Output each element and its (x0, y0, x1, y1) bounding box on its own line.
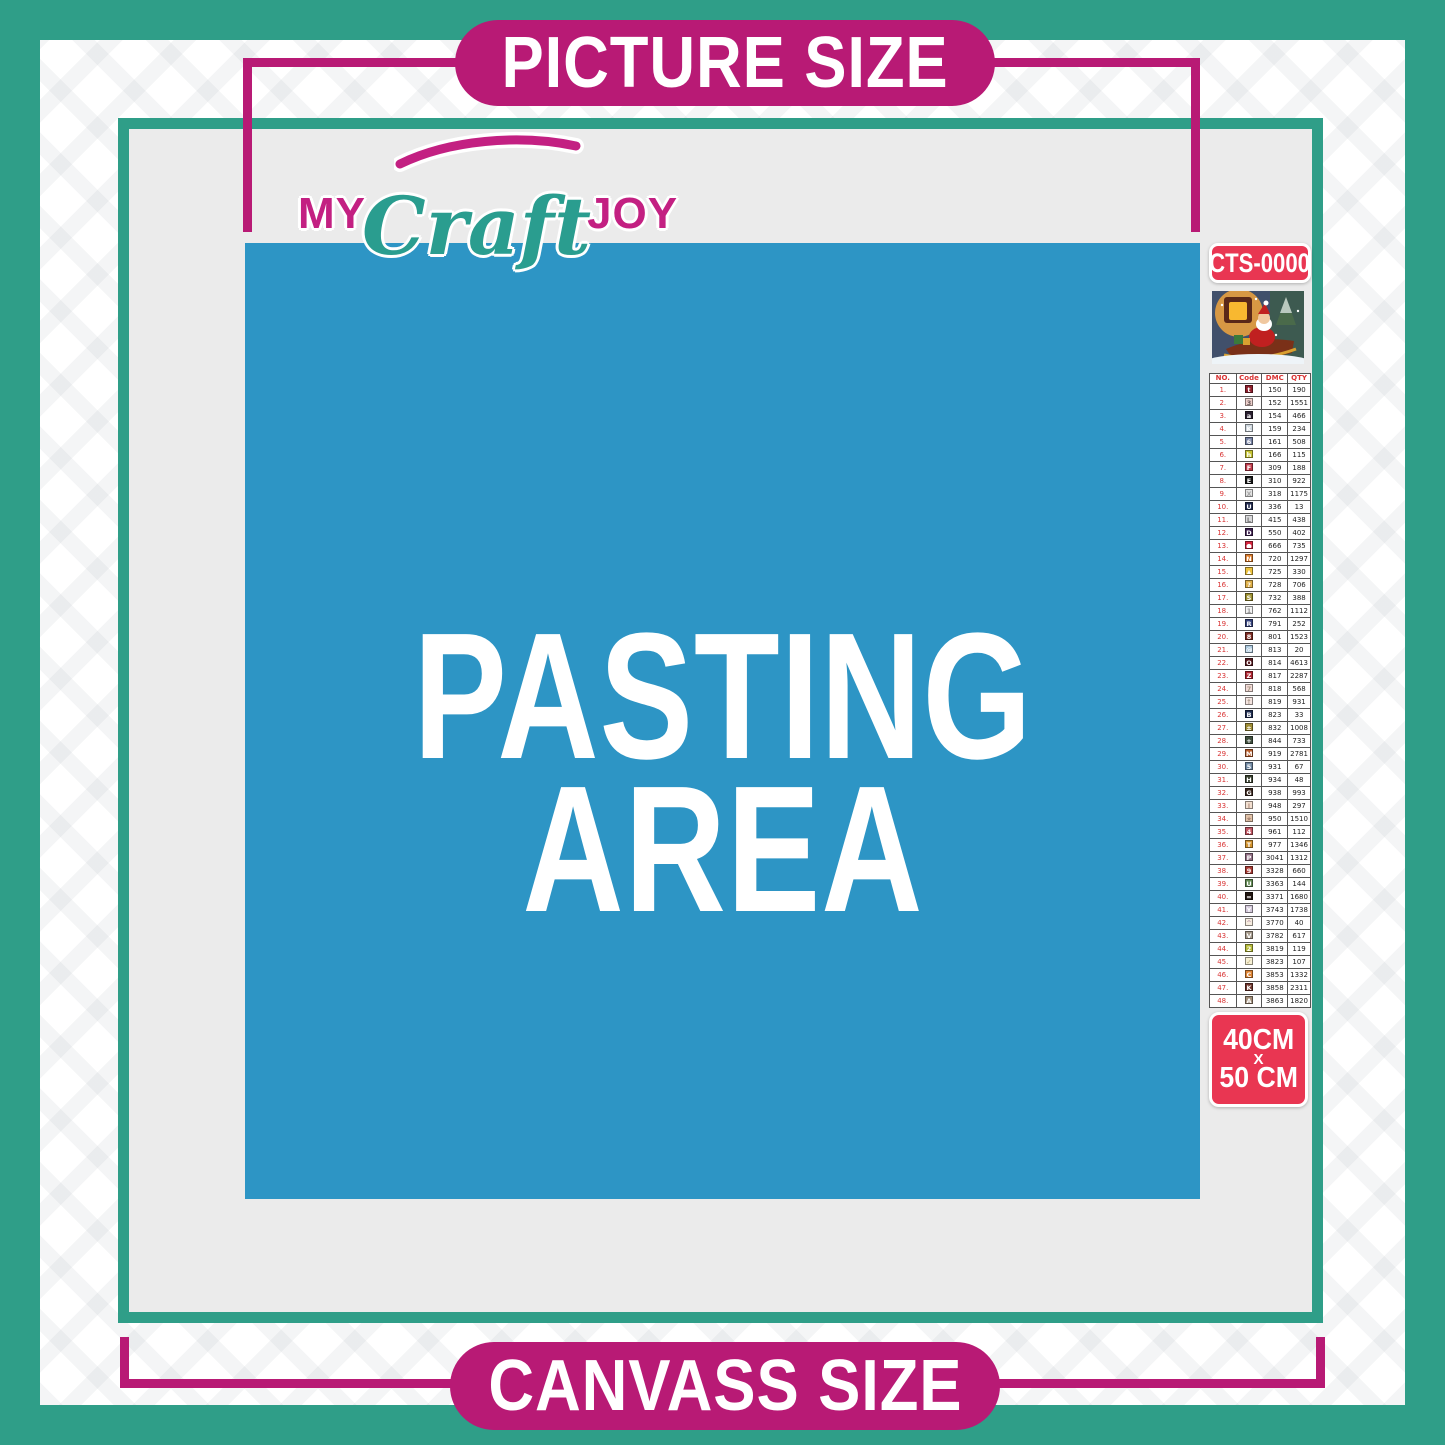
row-qty-value: 1112 (1288, 605, 1311, 618)
canvas-size-badge: 40CM X 50 CM (1209, 1012, 1308, 1107)
row-number: 16. (1210, 579, 1237, 592)
row-dmc-value: 818 (1262, 683, 1288, 696)
table-row: 41. Y 3743 1738 (1210, 904, 1311, 917)
color-symbol: ★ (1245, 814, 1253, 822)
row-qty-value: 20 (1288, 644, 1311, 657)
row-qty-value: 1346 (1288, 839, 1311, 852)
table-row: 24. 7 818 568 (1210, 683, 1311, 696)
table-row: 48. A 3863 1820 (1210, 995, 1311, 1008)
row-dmc-value: 720 (1262, 553, 1288, 566)
table-row: 13. ● 666 735 (1210, 540, 1311, 553)
row-qty-value: 706 (1288, 579, 1311, 592)
color-symbol: U (1245, 502, 1253, 510)
pasting-area: PASTING AREA (245, 243, 1200, 1199)
row-qty-value: 13 (1288, 501, 1311, 514)
row-code-cell: S (1236, 592, 1262, 605)
row-number: 44. (1210, 943, 1237, 956)
table-row: 7. F 309 188 (1210, 462, 1311, 475)
legend-table-head: NO. Code DMC QTY (1210, 374, 1311, 384)
table-row: 16. ? 728 706 (1210, 579, 1311, 592)
row-code-cell: U (1236, 501, 1262, 514)
row-dmc-value: 3858 (1262, 982, 1288, 995)
canvas-layout-sheet: { "colors": { "teal": "#2f9e88", "magent… (0, 0, 1445, 1445)
row-qty-value: 115 (1288, 449, 1311, 462)
row-qty-value: 330 (1288, 566, 1311, 579)
table-row: 45. ✓ 3823 107 (1210, 956, 1311, 969)
table-row: 37. P 3041 1312 (1210, 852, 1311, 865)
table-row: 1. t 150 190 (1210, 384, 1311, 397)
row-number: 1. (1210, 384, 1237, 397)
row-code-cell: ± (1236, 722, 1262, 735)
row-qty-value: 1551 (1288, 397, 1311, 410)
color-symbol: B (1245, 710, 1253, 718)
table-row: 19. R 791 252 (1210, 618, 1311, 631)
row-code-cell: ? (1236, 579, 1262, 592)
row-number: 42. (1210, 917, 1237, 930)
row-number: 25. (1210, 696, 1237, 709)
color-symbol: 8 (1245, 632, 1253, 640)
table-row: 35. 4 961 112 (1210, 826, 1311, 839)
row-dmc-value: 3770 (1262, 917, 1288, 930)
row-qty-value: 1680 (1288, 891, 1311, 904)
row-code-cell: C (1236, 969, 1262, 982)
row-qty-value: 1523 (1288, 631, 1311, 644)
row-qty-value: 922 (1288, 475, 1311, 488)
row-qty-value: 1297 (1288, 553, 1311, 566)
row-number: 20. (1210, 631, 1237, 644)
table-row: 3. a 154 466 (1210, 410, 1311, 423)
thumb-hat-pompom (1264, 301, 1269, 306)
table-row: 17. S 732 388 (1210, 592, 1311, 605)
row-code-cell: U (1236, 878, 1262, 891)
color-symbol: L (1245, 515, 1253, 523)
row-qty-value: 402 (1288, 527, 1311, 540)
color-symbol: Z (1245, 671, 1253, 679)
row-number: 22. (1210, 657, 1237, 670)
color-symbol: E (1245, 476, 1253, 484)
color-symbol: A (1245, 996, 1253, 1004)
row-code-cell: P (1236, 852, 1262, 865)
row-qty-value: 112 (1288, 826, 1311, 839)
row-dmc-value: 309 (1262, 462, 1288, 475)
row-qty-value: 48 (1288, 774, 1311, 787)
color-symbol: h (1245, 450, 1253, 458)
row-dmc-value: 844 (1262, 735, 1288, 748)
row-number: 46. (1210, 969, 1237, 982)
row-qty-value: 660 (1288, 865, 1311, 878)
row-dmc-value: 728 (1262, 579, 1288, 592)
row-dmc-value: 801 (1262, 631, 1288, 644)
row-number: 8. (1210, 475, 1237, 488)
table-row: 8. E 310 922 (1210, 475, 1311, 488)
row-dmc-value: 961 (1262, 826, 1288, 839)
row-code-cell: 3 (1236, 397, 1262, 410)
logo-my: MY (298, 192, 366, 236)
row-code-cell: D (1236, 527, 1262, 540)
table-row: 4. K 159 234 (1210, 423, 1311, 436)
row-number: 41. (1210, 904, 1237, 917)
row-dmc-value: 154 (1262, 410, 1288, 423)
color-symbol: + (1245, 736, 1253, 744)
row-number: 4. (1210, 423, 1237, 436)
row-qty-value: 33 (1288, 709, 1311, 722)
row-code-cell: J (1236, 800, 1262, 813)
row-number: 21. (1210, 644, 1237, 657)
row-code-cell: B (1236, 709, 1262, 722)
row-qty-value: 107 (1288, 956, 1311, 969)
row-dmc-value: 310 (1262, 475, 1288, 488)
thumb-fire (1229, 302, 1247, 320)
row-code-cell: L (1236, 514, 1262, 527)
row-number: 30. (1210, 761, 1237, 774)
row-code-cell: @ (1236, 644, 1262, 657)
row-code-cell: ● (1236, 540, 1262, 553)
row-dmc-value: 938 (1262, 787, 1288, 800)
table-row: 42. ^ 3770 40 (1210, 917, 1311, 930)
row-qty-value: 568 (1288, 683, 1311, 696)
color-symbol: M (1245, 749, 1253, 757)
row-code-cell: A (1236, 995, 1262, 1008)
row-code-cell: ★ (1236, 813, 1262, 826)
table-row: 9. X 318 1175 (1210, 488, 1311, 501)
row-number: 37. (1210, 852, 1237, 865)
color-symbol: H (1245, 775, 1253, 783)
table-row: 47. K 3858 2311 (1210, 982, 1311, 995)
row-dmc-value: 3853 (1262, 969, 1288, 982)
color-symbol: ✓ (1245, 957, 1253, 965)
row-code-cell: G (1236, 787, 1262, 800)
table-row: 21. @ 813 20 (1210, 644, 1311, 657)
table-row: 44. 2 3819 119 (1210, 943, 1311, 956)
row-code-cell: 6 (1236, 436, 1262, 449)
row-number: 15. (1210, 566, 1237, 579)
row-dmc-value: 3823 (1262, 956, 1288, 969)
color-legend-table: NO. Code DMC QTY 1. t 150 190 2. 3 152 1… (1209, 373, 1311, 1008)
row-dmc-value: 415 (1262, 514, 1288, 527)
table-row: 26. B 823 33 (1210, 709, 1311, 722)
table-row: 23. Z 817 2287 (1210, 670, 1311, 683)
color-symbol: U (1245, 879, 1253, 887)
row-number: 36. (1210, 839, 1237, 852)
color-symbol: K (1245, 983, 1253, 991)
table-row: 20. 8 801 1523 (1210, 631, 1311, 644)
row-number: 43. (1210, 930, 1237, 943)
row-number: 24. (1210, 683, 1237, 696)
row-code-cell: K (1236, 982, 1262, 995)
color-symbol: N (1245, 554, 1253, 562)
row-number: 9. (1210, 488, 1237, 501)
table-row: 36. T 977 1346 (1210, 839, 1311, 852)
product-thumbnail (1212, 291, 1304, 364)
color-symbol: O (1245, 658, 1253, 666)
row-number: 34. (1210, 813, 1237, 826)
row-qty-value: 252 (1288, 618, 1311, 631)
row-number: 40. (1210, 891, 1237, 904)
row-number: 23. (1210, 670, 1237, 683)
row-code-cell: 8 (1236, 631, 1262, 644)
thumb-snowflake (1221, 304, 1223, 306)
color-symbol: t (1245, 385, 1253, 393)
row-dmc-value: 948 (1262, 800, 1288, 813)
row-qty-value: 1332 (1288, 969, 1311, 982)
table-row: 31. H 934 48 (1210, 774, 1311, 787)
row-code-cell: ↑ (1236, 696, 1262, 709)
row-qty-value: 188 (1288, 462, 1311, 475)
row-dmc-value: 762 (1262, 605, 1288, 618)
row-qty-value: 1820 (1288, 995, 1311, 1008)
color-symbol: 2 (1245, 944, 1253, 952)
row-code-cell: + (1236, 735, 1262, 748)
row-qty-value: 931 (1288, 696, 1311, 709)
color-symbol: = (1245, 892, 1253, 900)
table-row: 33. J 948 297 (1210, 800, 1311, 813)
color-symbol: 4 (1245, 827, 1253, 835)
row-dmc-value: 3819 (1262, 943, 1288, 956)
row-code-cell: t (1236, 384, 1262, 397)
row-number: 31. (1210, 774, 1237, 787)
color-symbol: V (1245, 931, 1253, 939)
row-number: 47. (1210, 982, 1237, 995)
row-code-cell: F (1236, 462, 1262, 475)
table-row: 32. G 938 993 (1210, 787, 1311, 800)
row-dmc-value: 3743 (1262, 904, 1288, 917)
table-row: 5. 6 161 508 (1210, 436, 1311, 449)
row-code-cell: T (1236, 839, 1262, 852)
row-code-cell: Y (1236, 904, 1262, 917)
row-code-cell: N (1236, 553, 1262, 566)
row-dmc-value: 823 (1262, 709, 1288, 722)
row-number: 7. (1210, 462, 1237, 475)
thumb-snowflake (1275, 334, 1277, 336)
row-qty-value: 1008 (1288, 722, 1311, 735)
size-height: 50 CM (1219, 1066, 1298, 1091)
row-qty-value: 1312 (1288, 852, 1311, 865)
row-number: 3. (1210, 410, 1237, 423)
row-dmc-value: 3371 (1262, 891, 1288, 904)
row-qty-value: 40 (1288, 917, 1311, 930)
color-symbol: ↑ (1245, 697, 1253, 705)
row-number: 10. (1210, 501, 1237, 514)
color-symbol: C (1245, 970, 1253, 978)
table-row: 34. ★ 950 1510 (1210, 813, 1311, 826)
table-row: 2. 3 152 1551 (1210, 397, 1311, 410)
color-symbol: K (1245, 424, 1253, 432)
pasting-line-2: AREA (413, 773, 1032, 926)
row-code-cell: V (1236, 930, 1262, 943)
row-dmc-value: 550 (1262, 527, 1288, 540)
row-number: 11. (1210, 514, 1237, 527)
row-dmc-value: 161 (1262, 436, 1288, 449)
thumb-snowflake (1255, 298, 1257, 300)
row-number: 17. (1210, 592, 1237, 605)
row-dmc-value: 150 (1262, 384, 1288, 397)
table-row: 29. M 919 2781 (1210, 748, 1311, 761)
color-symbol: J (1245, 801, 1253, 809)
table-row: 40. = 3371 1680 (1210, 891, 1311, 904)
legend-table-body: 1. t 150 190 2. 3 152 1551 3. a 154 466 … (1210, 384, 1311, 1008)
row-code-cell: 7 (1236, 683, 1262, 696)
row-qty-value: 1510 (1288, 813, 1311, 826)
row-number: 29. (1210, 748, 1237, 761)
legend-strip: CTS-0000 NO. Code DMC QTY (1204, 243, 1312, 1107)
color-symbol: @ (1245, 645, 1253, 653)
row-qty-value: 297 (1288, 800, 1311, 813)
row-number: 26. (1210, 709, 1237, 722)
color-symbol: ^ (1245, 918, 1253, 926)
color-symbol: 5 (1245, 762, 1253, 770)
row-qty-value: 733 (1288, 735, 1311, 748)
row-code-cell: h (1236, 449, 1262, 462)
row-number: 19. (1210, 618, 1237, 631)
row-qty-value: 735 (1288, 540, 1311, 553)
row-number: 28. (1210, 735, 1237, 748)
row-qty-value: 388 (1288, 592, 1311, 605)
row-number: 14. (1210, 553, 1237, 566)
row-dmc-value: 3363 (1262, 878, 1288, 891)
thumb-gift-green (1234, 335, 1243, 344)
row-number: 33. (1210, 800, 1237, 813)
row-qty-value: 67 (1288, 761, 1311, 774)
table-row: 38. 9 3328 660 (1210, 865, 1311, 878)
color-symbol: F (1245, 463, 1253, 471)
header-qty: QTY (1288, 374, 1311, 384)
row-dmc-value: 666 (1262, 540, 1288, 553)
row-code-cell: a (1236, 410, 1262, 423)
table-row: 30. 5 931 67 (1210, 761, 1311, 774)
row-number: 12. (1210, 527, 1237, 540)
row-code-cell: 2 (1236, 943, 1262, 956)
row-code-cell: = (1236, 891, 1262, 904)
color-symbol: 6 (1245, 437, 1253, 445)
logo-craft: Craft (362, 196, 591, 256)
row-qty-value: 119 (1288, 943, 1311, 956)
row-qty-value: 190 (1288, 384, 1311, 397)
table-row: 28. + 844 733 (1210, 735, 1311, 748)
row-dmc-value: 817 (1262, 670, 1288, 683)
row-dmc-value: 832 (1262, 722, 1288, 735)
row-number: 6. (1210, 449, 1237, 462)
color-symbol: R (1245, 619, 1253, 627)
header-no: NO. (1210, 374, 1237, 384)
picture-size-banner: PICTURE SIZE (455, 20, 995, 106)
row-number: 39. (1210, 878, 1237, 891)
row-number: 27. (1210, 722, 1237, 735)
table-row: 11. L 415 438 (1210, 514, 1311, 527)
size-width: 40CM (1223, 1028, 1294, 1053)
table-row: 6. h 166 115 (1210, 449, 1311, 462)
brand-logo: MY Craft JOY (298, 146, 678, 246)
row-dmc-value: 931 (1262, 761, 1288, 774)
table-row: 15. ▲ 725 330 (1210, 566, 1311, 579)
table-row: 27. ± 832 1008 (1210, 722, 1311, 735)
color-symbol: P (1245, 853, 1253, 861)
color-symbol: ▲ (1245, 567, 1253, 575)
color-symbol: S (1245, 593, 1253, 601)
picture-size-label: PICTURE SIZE (501, 22, 948, 104)
table-row: 18. 1 762 1112 (1210, 605, 1311, 618)
color-symbol: D (1245, 528, 1253, 536)
row-qty-value: 2781 (1288, 748, 1311, 761)
row-code-cell: 4 (1236, 826, 1262, 839)
row-number: 38. (1210, 865, 1237, 878)
color-symbol: ± (1245, 723, 1253, 731)
color-symbol: 9 (1245, 866, 1253, 874)
row-qty-value: 144 (1288, 878, 1311, 891)
row-dmc-value: 3328 (1262, 865, 1288, 878)
color-symbol: ? (1245, 580, 1253, 588)
table-row: 43. V 3782 617 (1210, 930, 1311, 943)
color-symbol: Y (1245, 905, 1253, 913)
row-dmc-value: 725 (1262, 566, 1288, 579)
row-number: 13. (1210, 540, 1237, 553)
row-dmc-value: 3041 (1262, 852, 1288, 865)
color-symbol: a (1245, 411, 1253, 419)
row-dmc-value: 318 (1262, 488, 1288, 501)
table-row: 25. ↑ 819 931 (1210, 696, 1311, 709)
pasting-area-label: PASTING AREA (326, 620, 1120, 926)
table-row: 12. D 550 402 (1210, 527, 1311, 540)
row-number: 32. (1210, 787, 1237, 800)
canvass-size-banner: CANVASS SIZE (450, 1342, 1000, 1430)
row-code-cell: ^ (1236, 917, 1262, 930)
table-row: 14. N 720 1297 (1210, 553, 1311, 566)
row-qty-value: 2311 (1288, 982, 1311, 995)
row-qty-value: 508 (1288, 436, 1311, 449)
row-dmc-value: 3863 (1262, 995, 1288, 1008)
thumb-snowflake (1297, 310, 1299, 312)
row-dmc-value: 3782 (1262, 930, 1288, 943)
row-qty-value: 438 (1288, 514, 1311, 527)
row-code-cell: ▲ (1236, 566, 1262, 579)
table-row: 10. U 336 13 (1210, 501, 1311, 514)
row-qty-value: 466 (1288, 410, 1311, 423)
row-qty-value: 993 (1288, 787, 1311, 800)
row-qty-value: 617 (1288, 930, 1311, 943)
logo-joy: JOY (587, 192, 678, 236)
row-dmc-value: 934 (1262, 774, 1288, 787)
color-symbol: G (1245, 788, 1253, 796)
row-dmc-value: 791 (1262, 618, 1288, 631)
row-code-cell: Z (1236, 670, 1262, 683)
row-number: 18. (1210, 605, 1237, 618)
row-qty-value: 234 (1288, 423, 1311, 436)
row-qty-value: 4613 (1288, 657, 1311, 670)
row-code-cell: E (1236, 475, 1262, 488)
row-code-cell: M (1236, 748, 1262, 761)
row-dmc-value: 159 (1262, 423, 1288, 436)
row-dmc-value: 919 (1262, 748, 1288, 761)
row-dmc-value: 977 (1262, 839, 1288, 852)
product-code-badge: CTS-0000 (1209, 243, 1311, 283)
row-code-cell: X (1236, 488, 1262, 501)
row-code-cell: ✓ (1236, 956, 1262, 969)
row-qty-value: 1738 (1288, 904, 1311, 917)
row-code-cell: H (1236, 774, 1262, 787)
color-symbol: 1 (1245, 606, 1253, 614)
row-code-cell: K (1236, 423, 1262, 436)
color-symbol: ● (1245, 541, 1253, 549)
row-dmc-value: 732 (1262, 592, 1288, 605)
row-number: 45. (1210, 956, 1237, 969)
color-symbol: X (1245, 489, 1253, 497)
row-code-cell: 1 (1236, 605, 1262, 618)
row-qty-value: 1175 (1288, 488, 1311, 501)
legend-header-row: NO. Code DMC QTY (1210, 374, 1311, 384)
color-symbol: T (1245, 840, 1253, 848)
row-code-cell: 5 (1236, 761, 1262, 774)
row-dmc-value: 819 (1262, 696, 1288, 709)
row-number: 2. (1210, 397, 1237, 410)
